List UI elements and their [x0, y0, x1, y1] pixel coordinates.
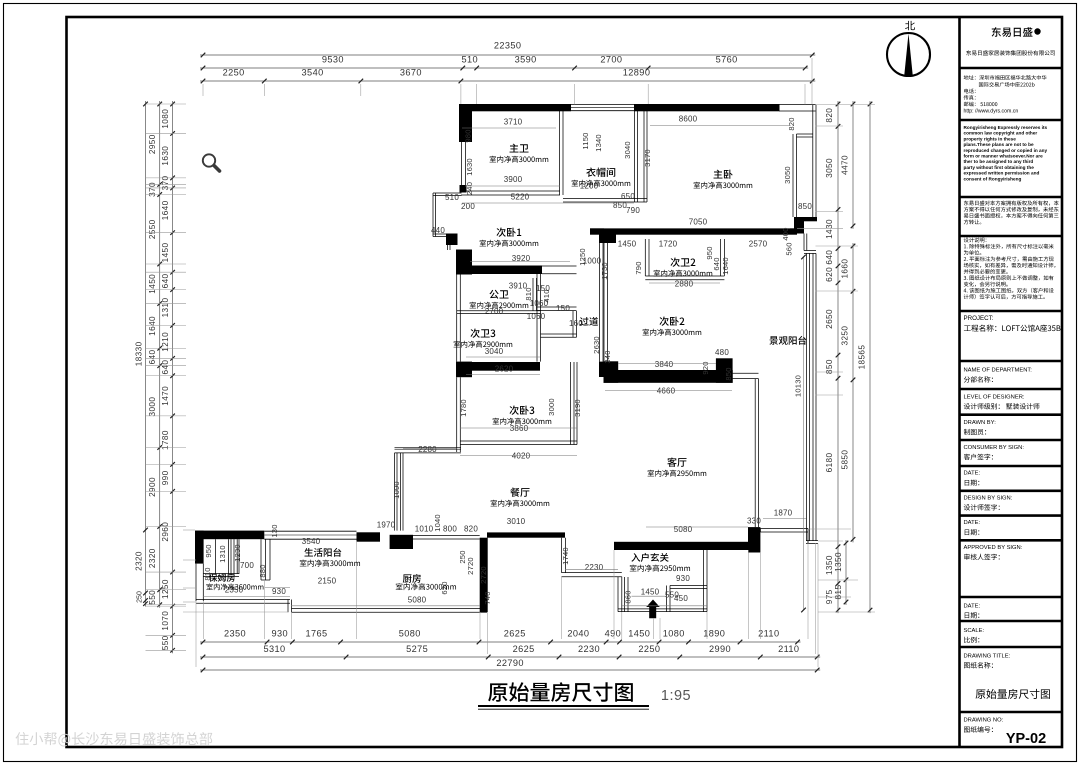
svg-text:22350: 22350: [494, 41, 522, 51]
svg-text:410: 410: [542, 289, 551, 302]
svg-text:1640: 1640: [148, 316, 157, 336]
svg-text:860: 860: [624, 590, 633, 603]
svg-text:1630: 1630: [465, 158, 474, 176]
svg-text:1150: 1150: [581, 132, 590, 149]
svg-text:1430: 1430: [825, 219, 834, 239]
svg-text:450: 450: [674, 594, 688, 603]
svg-text:1310: 1310: [161, 298, 170, 318]
svg-text:850: 850: [724, 367, 733, 380]
svg-text:DESIGN BY SIGN:: DESIGN BY SIGN:: [964, 495, 1013, 501]
svg-text:1040: 1040: [433, 514, 442, 532]
svg-text:plans.These plans are not to b: plans.These plans are not to be: [964, 142, 1034, 147]
svg-text:1250: 1250: [161, 579, 170, 599]
svg-text:640: 640: [825, 250, 834, 265]
svg-text:510: 510: [445, 193, 459, 202]
svg-text:2720: 2720: [466, 557, 475, 575]
svg-text:2550: 2550: [148, 219, 157, 239]
svg-text:3670: 3670: [400, 68, 422, 78]
svg-text:1000: 1000: [583, 257, 602, 266]
svg-text:560: 560: [785, 242, 794, 255]
svg-text:3900: 3900: [504, 175, 523, 184]
svg-text:3590: 3590: [515, 55, 537, 65]
svg-text:4020: 4020: [512, 452, 531, 461]
svg-text:510: 510: [461, 55, 478, 65]
svg-text:3000: 3000: [547, 398, 556, 416]
svg-text:2150: 2150: [318, 577, 337, 586]
svg-text:1450: 1450: [641, 588, 660, 597]
svg-text:5850: 5850: [841, 450, 850, 470]
svg-text:ther to be assigned to any th: ther to be assigned to any third: [964, 159, 1034, 164]
svg-text:1450: 1450: [148, 274, 157, 294]
svg-text:1310: 1310: [218, 545, 227, 563]
svg-text:2570: 2570: [749, 240, 768, 249]
svg-text:640: 640: [712, 257, 721, 270]
svg-text:2720: 2720: [479, 566, 488, 584]
svg-text:12890: 12890: [623, 68, 651, 78]
svg-text:1090: 1090: [392, 481, 401, 499]
svg-text:Rongyirisheng Expressly reserv: Rongyirisheng Expressly reserves its: [964, 125, 1048, 130]
svg-text:3000: 3000: [148, 397, 157, 417]
svg-text:YP-02: YP-02: [1006, 731, 1046, 747]
svg-text:1780: 1780: [161, 430, 170, 450]
svg-text:1060: 1060: [527, 312, 546, 321]
svg-text:1450: 1450: [618, 240, 637, 249]
svg-text:3040: 3040: [485, 347, 504, 356]
svg-text:8600: 8600: [679, 115, 698, 124]
svg-text:2250: 2250: [638, 644, 660, 654]
svg-text:650: 650: [621, 192, 635, 201]
svg-text:340: 340: [603, 350, 612, 363]
svg-text:1230: 1230: [233, 544, 242, 562]
svg-text:250: 250: [458, 550, 467, 563]
svg-text:2880: 2880: [675, 280, 694, 289]
svg-text:10130: 10130: [794, 375, 803, 397]
svg-text:18330: 18330: [134, 341, 143, 366]
svg-text:2350: 2350: [224, 629, 246, 639]
svg-text:DRAWN BY:: DRAWN BY:: [964, 420, 997, 426]
svg-text:2040: 2040: [567, 629, 589, 639]
svg-text:9530: 9530: [322, 55, 344, 65]
svg-text:1640: 1640: [721, 257, 730, 275]
svg-text:2350: 2350: [225, 586, 244, 595]
svg-text:3250: 3250: [841, 326, 850, 346]
svg-text:1350: 1350: [834, 552, 843, 572]
svg-text:18565: 18565: [858, 345, 867, 370]
svg-text:5275: 5275: [406, 644, 428, 654]
svg-text:3540: 3540: [302, 537, 321, 546]
svg-text:850: 850: [798, 202, 812, 211]
svg-text:2960: 2960: [161, 522, 170, 542]
svg-text:2230: 2230: [578, 644, 600, 654]
svg-text:790: 790: [634, 261, 643, 274]
svg-text:http: //www.dyrs.com.cn: http: //www.dyrs.com.cn: [964, 109, 1019, 115]
svg-text:3860: 3860: [510, 424, 529, 433]
svg-text:620: 620: [825, 267, 834, 282]
svg-text:reproduced changed or copied i: reproduced changed or copied in any: [964, 148, 1048, 153]
svg-text:1070: 1070: [161, 611, 170, 631]
svg-text:property rights in these: property rights in these: [964, 136, 1017, 141]
svg-text:2630: 2630: [592, 336, 601, 354]
svg-text:2625: 2625: [513, 644, 535, 654]
svg-text:1350: 1350: [825, 555, 834, 575]
svg-text:480: 480: [715, 348, 729, 357]
svg-text:1890: 1890: [703, 629, 725, 639]
svg-text:950: 950: [204, 544, 213, 557]
svg-text:3190: 3190: [573, 399, 582, 417]
svg-text:1:95: 1:95: [661, 688, 691, 704]
svg-text:1970: 1970: [377, 521, 396, 530]
svg-text:250: 250: [136, 591, 143, 603]
svg-text:1870: 1870: [774, 509, 793, 518]
svg-text:2620: 2620: [495, 365, 514, 374]
svg-text:1630: 1630: [161, 146, 170, 166]
svg-text:2280: 2280: [418, 445, 437, 454]
svg-text:2625: 2625: [504, 629, 526, 639]
svg-text:330: 330: [747, 517, 761, 526]
svg-text:5760: 5760: [716, 55, 738, 65]
svg-text:2320: 2320: [148, 548, 157, 568]
svg-text:6180: 6180: [825, 453, 834, 473]
svg-text:3840: 3840: [655, 360, 674, 369]
svg-text:1080: 1080: [663, 629, 685, 639]
svg-text:2950: 2950: [148, 134, 157, 154]
svg-text:DRAWING NO:: DRAWING NO:: [964, 718, 1004, 724]
svg-text:800: 800: [443, 525, 457, 534]
svg-text:1780: 1780: [459, 399, 468, 417]
svg-text:550: 550: [161, 635, 170, 650]
svg-text:1450: 1450: [161, 242, 170, 262]
svg-text:5310: 5310: [264, 644, 286, 654]
svg-text:990: 990: [161, 470, 170, 485]
svg-text:930: 930: [272, 587, 286, 596]
svg-text:common law copyright and other: common law copyright and other: [964, 131, 1038, 136]
svg-text:930: 930: [271, 629, 288, 639]
svg-text:1720: 1720: [659, 240, 678, 249]
svg-text:3170: 3170: [643, 149, 652, 167]
svg-text:NAME OF DEPARTMENT:: NAME OF DEPARTMENT:: [964, 368, 1033, 374]
svg-text:4470: 4470: [841, 155, 850, 175]
svg-text:CONSUMER BY SIGN:: CONSUMER BY SIGN:: [964, 445, 1025, 451]
svg-text:440: 440: [431, 226, 445, 235]
svg-text:3010: 3010: [507, 517, 526, 526]
svg-text:DRAWING TITLE:: DRAWING TITLE:: [964, 653, 1011, 659]
svg-text:2700: 2700: [600, 55, 622, 65]
svg-text:1470: 1470: [161, 386, 170, 406]
svg-text:1340: 1340: [594, 134, 603, 152]
svg-text:5080: 5080: [674, 525, 693, 534]
svg-text:2110: 2110: [778, 644, 799, 654]
svg-text:5080: 5080: [399, 629, 421, 639]
svg-text:DATE:: DATE:: [964, 520, 981, 526]
svg-text:700: 700: [240, 561, 254, 570]
svg-text:150: 150: [556, 304, 570, 313]
svg-text:1080: 1080: [161, 109, 170, 129]
svg-text:3540: 3540: [302, 68, 324, 78]
svg-text:490: 490: [605, 629, 622, 639]
svg-text:810: 810: [524, 287, 533, 300]
svg-text:820: 820: [825, 108, 834, 123]
svg-text:5080: 5080: [408, 596, 427, 605]
svg-text:DATE:: DATE:: [964, 471, 981, 477]
svg-text:240: 240: [465, 182, 474, 195]
svg-text:4660: 4660: [657, 387, 676, 396]
svg-text:2650: 2650: [825, 309, 834, 329]
svg-text:980: 980: [464, 129, 473, 142]
svg-text:SCALE:: SCALE:: [964, 628, 985, 634]
svg-text:820: 820: [464, 525, 478, 534]
svg-text:7050: 7050: [689, 218, 708, 227]
svg-text:2320: 2320: [134, 551, 143, 571]
svg-text:APPROVED BY SIGN:: APPROVED BY SIGN:: [964, 545, 1023, 551]
svg-text:DATE:: DATE:: [964, 603, 981, 609]
svg-text:550: 550: [148, 590, 157, 605]
svg-text:130: 130: [270, 524, 279, 537]
svg-text:740: 740: [483, 591, 492, 604]
svg-text:3050: 3050: [825, 158, 834, 178]
svg-text:1765: 1765: [305, 629, 327, 639]
svg-text:2110: 2110: [758, 629, 779, 639]
svg-text:PROJECT:: PROJECT:: [964, 315, 994, 322]
svg-text:expressed written permission a: expressed written permission and: [964, 171, 1040, 176]
svg-text:640: 640: [161, 360, 170, 375]
svg-text:form or manner whatsoever.Nor: form or manner whatsoever.Nor are: [964, 154, 1044, 159]
svg-text:400: 400: [781, 227, 790, 240]
svg-text:880: 880: [258, 564, 267, 577]
svg-text:930: 930: [676, 574, 690, 583]
svg-text:consent of Rongyirisheng: consent of Rongyirisheng: [964, 176, 1022, 181]
svg-text:2230: 2230: [585, 563, 604, 572]
svg-text:790: 790: [626, 206, 640, 215]
svg-text:3040: 3040: [623, 141, 632, 159]
svg-text:1210: 1210: [161, 332, 170, 352]
svg-text:2900: 2900: [148, 477, 157, 497]
svg-text:2990: 2990: [709, 644, 731, 654]
svg-text:3710: 3710: [504, 118, 523, 127]
svg-text:LEVEL OF DESIGNER:: LEVEL OF DESIGNER:: [964, 394, 1025, 400]
svg-text:1740: 1740: [561, 547, 570, 565]
svg-text:620: 620: [440, 581, 449, 594]
svg-text:1010: 1010: [415, 525, 434, 534]
svg-text:820: 820: [787, 117, 796, 130]
svg-text:3050: 3050: [783, 166, 792, 184]
svg-text:200: 200: [461, 202, 475, 211]
svg-text:1660: 1660: [841, 259, 850, 279]
svg-text:640: 640: [161, 273, 170, 288]
svg-text:1730: 1730: [600, 262, 609, 280]
svg-text:1640: 1640: [161, 200, 170, 220]
svg-text:22790: 22790: [496, 658, 524, 668]
svg-text:1450: 1450: [628, 629, 650, 639]
svg-text:5220: 5220: [511, 193, 530, 202]
svg-text:party without first obtaining: party without first obtaining the: [964, 165, 1035, 170]
svg-text:2250: 2250: [223, 68, 245, 78]
svg-text:640: 640: [148, 350, 157, 365]
